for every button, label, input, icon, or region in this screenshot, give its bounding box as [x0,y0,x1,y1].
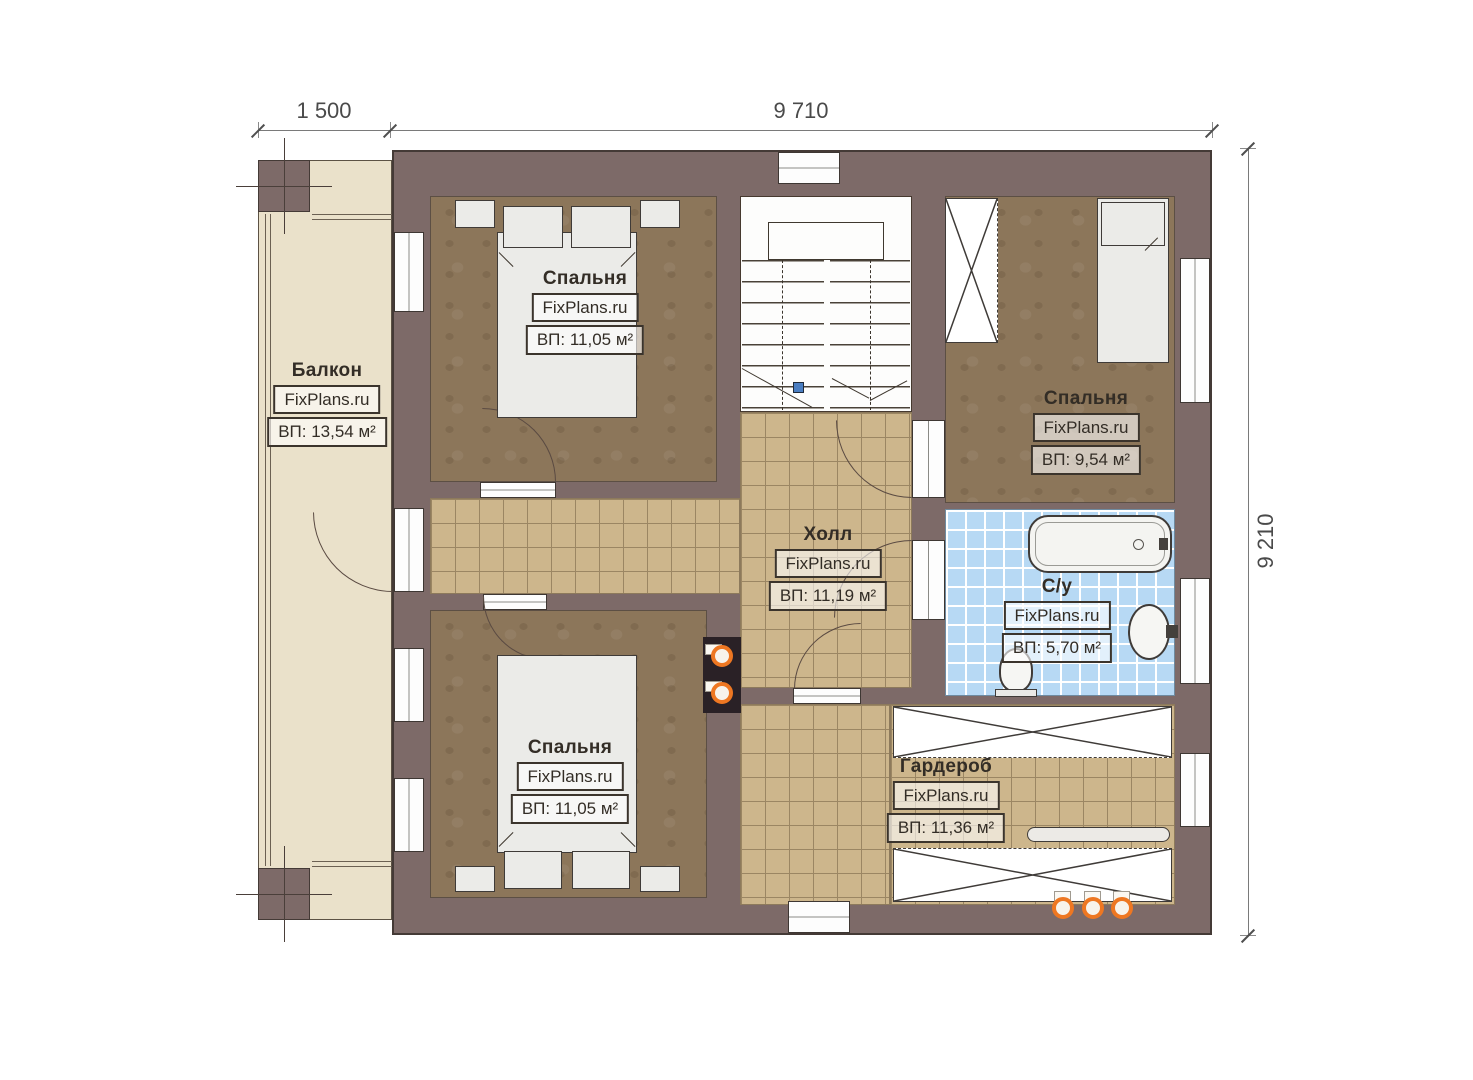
dimension-top-right: 9 710 [773,98,828,124]
dimension-right: 9 210 [1253,513,1279,568]
room-area: ВП: 11,19 м² [769,581,887,610]
balcony-railing [265,214,266,866]
window-top [778,152,840,184]
room-label-balcony: Балкон FixPlans.ru ВП: 13,54 м² [267,360,387,447]
watermark: FixPlans.ru [1003,601,1110,630]
stair-route-dot [793,382,804,393]
dimension-line-top [258,130,1212,131]
bathtub [1028,515,1172,573]
nightstand [455,866,495,892]
window-right-2 [1180,578,1210,684]
stair-flight-left [742,260,824,412]
room-name: Спальня [528,737,612,759]
heating-pipe [1052,897,1074,919]
room-label-bedroom-top-right: Спальня FixPlans.ru ВП: 9,54 м² [1031,388,1141,475]
room-label-bedroom-bottom-left: Спальня FixPlans.ru ВП: 11,05 м² [511,737,629,824]
wardrobe-cabinet-bottom [893,848,1172,902]
floor-hall-corridor-left [430,498,740,594]
stair-landing [768,222,884,260]
window-right-3 [1180,753,1210,827]
stair-guide-line [870,260,871,410]
toilet-tank [995,689,1037,697]
sink [1128,604,1170,660]
bedroom-tr-door-leaf [912,420,945,498]
room-area: ВП: 9,54 м² [1031,445,1141,474]
room-label-hall: Холл FixPlans.ru ВП: 11,19 м² [769,524,887,611]
watermark: FixPlans.ru [516,762,623,791]
nightstand [640,866,680,892]
dimension-top-left: 1 500 [296,98,351,124]
heating-pipe [711,682,733,704]
room-name: С/у [1042,576,1072,598]
room-area: ВП: 5,70 м² [1002,633,1112,662]
bathroom-door-leaf [912,540,945,620]
balcony-railing [312,214,392,215]
room-area: ВП: 11,05 м² [511,794,629,823]
balcony-railing [312,861,392,862]
room-name: Балкон [292,360,362,382]
stair-guide-line [782,260,783,410]
wardrobe-cabinet-top [893,706,1172,758]
pillow [571,206,631,248]
room-name: Холл [804,524,853,546]
room-label-bedroom-top-left: Спальня FixPlans.ru ВП: 11,05 м² [526,268,644,355]
dimension-line-right [1248,148,1249,935]
watermark: FixPlans.ru [774,549,881,578]
floor-corridor-bottom [740,704,890,905]
pillow [572,851,630,889]
heating-pipe [711,645,733,667]
room-name: Спальня [1044,388,1128,410]
room-label-wardrobe: Гардероб FixPlans.ru ВП: 11,36 м² [887,756,1005,843]
heating-pipe [1111,897,1133,919]
window-left-1 [394,232,424,312]
pillow [504,851,562,889]
room-area: ВП: 11,05 м² [526,325,644,354]
wardrobe-cabinet [945,198,998,343]
balcony-railing [312,866,392,867]
balcony-railing [270,214,271,866]
room-area: ВП: 13,54 м² [267,417,387,446]
bench [1027,827,1170,842]
pillow [503,206,563,248]
axis-mark [236,186,332,187]
axis-mark [236,894,332,895]
balcony-railing [312,219,392,220]
watermark: FixPlans.ru [531,293,638,322]
window-bottom [788,901,850,933]
room-label-bathroom: С/у FixPlans.ru ВП: 5,70 м² [1002,576,1112,663]
watermark: FixPlans.ru [273,385,380,414]
room-area: ВП: 11,36 м² [887,813,1005,842]
floor-plan: 1 500 9 710 9 210 [0,0,1473,1080]
wardrobe-door-leaf [793,688,861,704]
heating-pipe [1082,897,1104,919]
nightstand [455,200,495,228]
sink-tap [1166,625,1178,638]
watermark: FixPlans.ru [1032,413,1139,442]
watermark: FixPlans.ru [892,781,999,810]
window-left-2 [394,648,424,722]
room-name: Спальня [543,268,627,290]
bedroom-tl-door-leaf [480,482,556,498]
balcony-door-leaf [394,508,424,592]
window-right-1 [1180,258,1210,403]
window-left-3 [394,778,424,852]
nightstand [640,200,680,228]
room-name: Гардероб [900,756,992,778]
